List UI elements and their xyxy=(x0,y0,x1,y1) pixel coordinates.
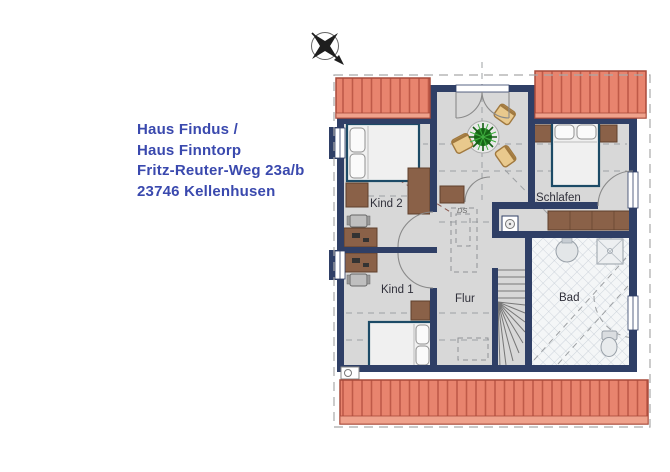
pillow-icon xyxy=(577,125,596,139)
roof-top-left xyxy=(336,78,430,118)
desk-icon xyxy=(344,253,377,272)
room-label-bad: Bad xyxy=(559,292,579,304)
desk-icon xyxy=(344,228,377,247)
door-opening xyxy=(430,212,437,247)
balcony-door-opening xyxy=(456,85,509,92)
door-opening xyxy=(430,253,437,288)
dresser-icon xyxy=(411,301,430,320)
toilet-icon xyxy=(601,331,617,357)
plant-icon xyxy=(469,123,497,151)
room-label-kind1: Kind 1 xyxy=(381,284,414,296)
compass-rose-icon xyxy=(312,33,345,66)
floorplan-page: Haus Findus / Haus Finntorp Fritz-Reuter… xyxy=(0,0,670,472)
nightstand-icon xyxy=(534,125,551,142)
roof-bottom xyxy=(340,380,648,424)
washing-machine-icon xyxy=(502,216,518,232)
chair-icon xyxy=(350,274,367,286)
room-label-kind2: Kind 2 xyxy=(370,198,403,210)
floor-plan-drawing: DS xyxy=(0,0,670,472)
vent-icon xyxy=(341,367,359,379)
chair-icon xyxy=(350,215,367,227)
laptop-icon xyxy=(352,258,360,263)
pillow-icon xyxy=(416,325,429,344)
wardrobe-icon xyxy=(408,168,430,214)
dresser-icon xyxy=(346,183,368,207)
pillow-icon xyxy=(350,128,365,152)
laptop-icon xyxy=(352,233,360,238)
ds-annotation: DS xyxy=(457,206,467,215)
pillow-icon xyxy=(416,346,429,365)
wardrobe-icon xyxy=(548,211,630,230)
roof-top-right xyxy=(535,71,646,118)
room-label-schlafen: Schlafen xyxy=(536,192,581,204)
pillow-icon xyxy=(350,154,365,178)
room-label-flur: Flur xyxy=(455,293,475,305)
nightstand-icon xyxy=(600,125,617,142)
shower-icon xyxy=(597,239,623,264)
pillow-icon xyxy=(555,125,574,139)
cabinet-icon xyxy=(440,186,464,203)
